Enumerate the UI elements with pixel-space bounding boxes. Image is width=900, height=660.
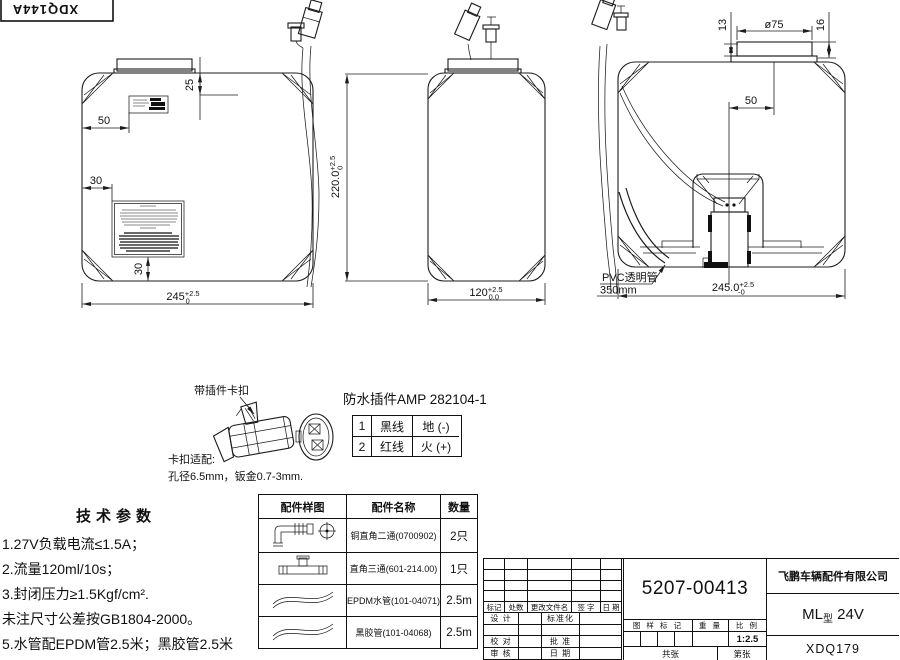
dim-25: 25 (184, 79, 196, 91)
part-qty: 2.5m (441, 617, 478, 649)
side-connector-plug (455, 2, 499, 60)
front-view: 25 50 30 30 245+2.50 (82, 0, 325, 308)
dim-cap-dia: ø75 (765, 19, 784, 31)
rev-header-mark: 标记 (484, 602, 505, 613)
tech-params: 技术参数 1.27V负载电流≤1.5A； 2.流量120ml/10s； 3.封闭… (2, 505, 264, 657)
title-block: 标记 处数 更改文件名 签 字 日 期 设 计 标准化 校 对 批 准 审 核 … (483, 558, 899, 660)
pin-wire: 红线 (371, 436, 412, 456)
pin-no: 2 (353, 436, 371, 456)
model-label: ML型 24V (767, 594, 899, 636)
dim-rear-width: 245.0+2.5-0 (712, 280, 754, 297)
internal-wire (620, 86, 725, 206)
side-corner-details (428, 73, 545, 281)
dim-16: 16 (815, 19, 827, 31)
tech-param-line: 未注尺寸公差按GB1804-2000。 (2, 607, 264, 632)
front-wires (302, 46, 319, 287)
pvc-tube (619, 188, 669, 263)
part-name: 黑胶管(101-04068) (347, 617, 441, 649)
front-dimensions: 25 50 30 30 245+2.50 (82, 57, 313, 308)
clip-fit-title: 卡扣适配: (168, 452, 303, 469)
clip-fit-note: 卡扣适配: 孔径6.5mm，钣金0.7-3mm. (168, 452, 303, 486)
dim-rear-50: 50 (745, 95, 757, 107)
tech-param-line: 3.封闭压力≥1.5Kgf/cm². (2, 582, 264, 607)
pump-recess (662, 174, 801, 248)
tech-param-line: 5.水管配EPDM管2.5米；黑胶管2.5米 (2, 632, 264, 657)
dim-13: 13 (717, 19, 729, 31)
sheet-page-unit: 张 (742, 648, 751, 660)
title-block-revision-area: 标记 处数 更改文件名 签 字 日 期 设 计 标准化 校 对 批 准 审 核 … (484, 559, 624, 660)
part-name: 直角三通(601-214.00) (347, 553, 441, 585)
pin-polarity: 火 (+) (412, 436, 459, 456)
part-number: 5207-00413 (624, 559, 766, 620)
rear-connector-plug (592, 0, 628, 30)
dim-side-width: 120+2.50.0 (469, 285, 502, 302)
sheet-total-cell: 共 张 (624, 647, 718, 660)
table-row: 黑胶管(101-04068) 2.5m (259, 617, 478, 649)
parts-header-row: 配件样图 配件名称 数量 (259, 495, 478, 519)
front-corner-details (82, 73, 313, 281)
side-dimensions: 220.0+2.50 120+2.50.0 (328, 74, 545, 305)
tank-bottom-lines (640, 247, 824, 253)
dim-30a: 30 (90, 175, 102, 187)
tech-param-line: 2.流量120ml/10s； (2, 557, 264, 582)
rear-wires (598, 44, 617, 294)
pin-no: 1 (353, 416, 371, 436)
title-block-middle: 5207-00413 图 样 标 记 重 量 比 例 1:2.5 共 张 第 张 (624, 559, 767, 660)
pvc-length-label: 350mm (600, 285, 637, 297)
clip-label: 带插件卡扣 (194, 383, 249, 397)
model-prefix: ML (802, 606, 823, 623)
sig-proof-label: 校 对 (484, 636, 519, 648)
sig-approve-label: 批 准 (542, 636, 580, 648)
rev-header-file: 更改文件名 (528, 602, 572, 613)
elbow-fitting-icon (265, 519, 341, 547)
sig-date-label: 日 期 (542, 648, 580, 660)
side-view: 220.0+2.50 120+2.50.0 (328, 2, 545, 305)
part-qty: 2.5m (441, 585, 478, 617)
scale-value: 1:2.5 (729, 632, 766, 647)
sheet-total-unit: 张 (670, 648, 679, 660)
dim-front-width: 245+2.50 (166, 289, 199, 306)
parts-header-qty: 数量 (441, 495, 478, 519)
dim-height: 220.0+2.50 (328, 156, 345, 198)
sig-standardize-label: 标准化 (542, 613, 580, 625)
company-name: 飞鹏车辆配件有限公司 (767, 559, 899, 594)
part-qty: 2只 (441, 519, 478, 553)
rear-view: ø75 13 16 50 245.0+2.5-0 PVC透明管 350mm (592, 0, 845, 299)
hose-icon (265, 585, 341, 611)
revision-table: 标记 处数 更改文件名 签 字 日 期 (484, 559, 623, 613)
table-row: EPDM水管(101-04071) 2.5m (259, 585, 478, 617)
clip-fit-detail: 孔径6.5mm，钣金0.7-3mm. (168, 469, 303, 486)
sig-design-label: 设 计 (484, 613, 519, 625)
signature-table: 设 计 标准化 校 对 批 准 审 核 日 期 (484, 613, 623, 660)
weight-label: 重 量 (693, 620, 729, 632)
pin-table: 1 黑线 地 (-) 2 红线 火 (+) (352, 415, 462, 457)
amp-connector-title: 防水插件AMP 282104-1 (343, 392, 487, 407)
sig-review-label: 审 核 (484, 648, 519, 660)
doc-id-box: XDQ144A (1, 0, 113, 21)
engineering-drawing-sheet: XDQ144A (0, 0, 900, 660)
rev-header-count: 处数 (505, 602, 528, 613)
part-name: EPDM水管(101-04071) (347, 585, 441, 617)
title-block-right: 飞鹏车辆配件有限公司 ML型 24V XDQ179 (767, 559, 899, 660)
small-label (129, 96, 168, 113)
tee-fitting-icon (265, 553, 341, 579)
tech-param-line: 1.27V负载电流≤1.5A； (2, 532, 264, 557)
rear-filler-cap (731, 56, 817, 62)
dim-50: 50 (98, 115, 110, 127)
model-type-char: 型 (823, 610, 833, 625)
dim-30b: 30 (133, 263, 145, 275)
washer-pump (703, 198, 751, 268)
pin-polarity: 地 (-) (412, 416, 459, 436)
hose-icon (265, 617, 341, 643)
parts-table: 配件样图 配件名称 数量 铜直角二通(0700902) 2只 直角三通(601-… (258, 494, 478, 649)
doc-id-text: XDQ144A (12, 2, 78, 17)
parts-header-name: 配件名称 (347, 495, 441, 519)
warning-label (112, 201, 184, 257)
rev-header-sign: 签 字 (572, 602, 601, 613)
front-connector-plug (288, 0, 325, 48)
drawing-code: XDQ179 (767, 636, 899, 660)
tech-params-title: 技术参数 (2, 505, 264, 526)
scale-label: 比 例 (729, 620, 766, 632)
part-name: 铜直角二通(0700902) (347, 519, 441, 553)
table-row: 直角三通(601-214.00) 1只 (259, 553, 478, 585)
sheet-page-label: 第 (733, 648, 742, 660)
part-qty: 1只 (441, 553, 478, 585)
rev-header-date: 日 期 (601, 602, 622, 613)
parts-header-sample: 配件样图 (259, 495, 347, 519)
sheet-page-cell: 第 张 (718, 647, 766, 660)
pin-wire: 黑线 (371, 416, 412, 436)
drawing-mark-label: 图 样 标 记 (624, 620, 693, 632)
table-row: 铜直角二通(0700902) 2只 (259, 519, 478, 553)
sheet-total-label: 共 (662, 648, 671, 660)
pvc-tube-label: PVC透明管 (602, 270, 658, 284)
rear-corner-details (618, 62, 845, 267)
model-voltage: 24V (837, 606, 864, 623)
